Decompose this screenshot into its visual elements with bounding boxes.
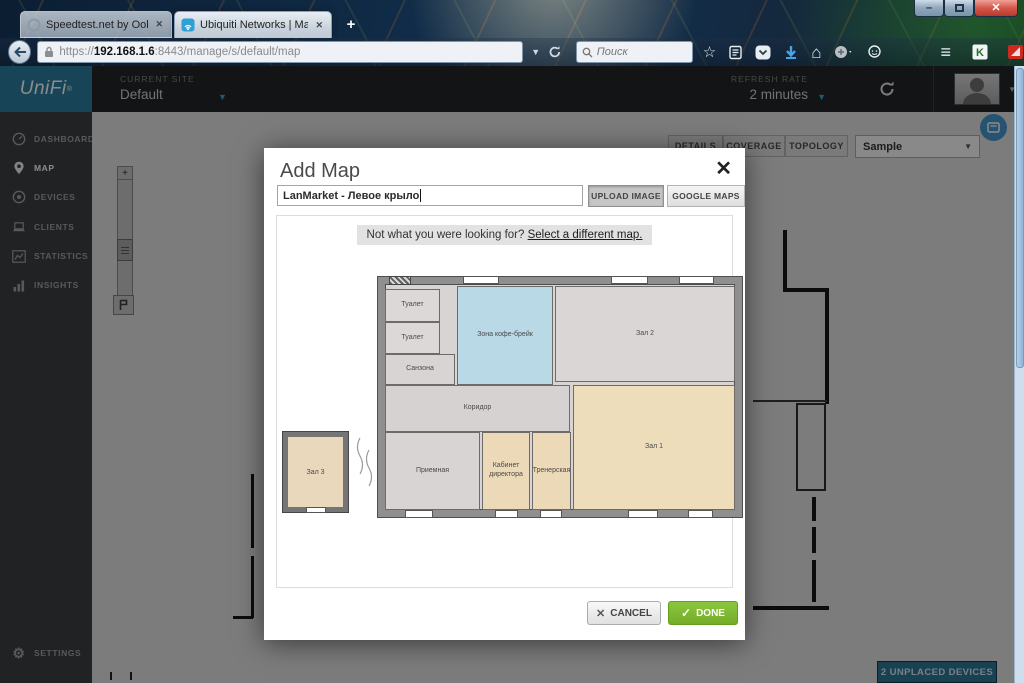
modal-title: Add Map (280, 160, 360, 183)
floorplan-window (540, 510, 562, 518)
floorplan-window (405, 510, 433, 518)
floorplan-main-building: Туалет Туалет Санзона Зона кофе-брейк За… (378, 277, 742, 517)
tab-strip: Speedtest.net by Ookla - Г... ✕ Ubiquiti… (0, 11, 1024, 38)
home-icon[interactable]: ⌂ (811, 44, 821, 61)
ubiquiti-favicon-icon (181, 18, 195, 32)
google-maps-button[interactable]: GOOGLE MAPS (667, 185, 745, 207)
tab-close-icon[interactable]: ✕ (313, 20, 325, 31)
tab-title: Ubiquiti Networks | Map (200, 19, 308, 31)
done-button[interactable]: ✓ DONE (668, 601, 738, 625)
urlbar-dropdown-icon[interactable]: ▼ (531, 47, 540, 57)
download-icon[interactable] (784, 45, 798, 60)
back-arrow-icon (13, 46, 27, 58)
map-name-value: LanMarket - Левое крыло (283, 190, 419, 202)
speedtest-favicon-icon (27, 18, 41, 32)
tab-title: Speedtest.net by Ookla - Г... (46, 19, 148, 31)
floorplan-room: Тренерская (532, 432, 571, 510)
map-notice: Not what you were looking for? Select a … (357, 225, 653, 245)
select-different-map-link[interactable]: Select a different map. (528, 229, 643, 241)
new-tab-button[interactable]: + (338, 15, 364, 35)
floorplan-room: Зона кофе-брейк (457, 286, 553, 385)
pocket-icon[interactable] (755, 45, 771, 60)
floorplan-break-symbol (350, 436, 378, 506)
tab-close-icon[interactable]: ✕ (153, 19, 165, 30)
floorplan-room: Кабинет директора (482, 432, 530, 510)
kaspersky-protection-icon[interactable] (1007, 44, 1024, 60)
floorplan-window (628, 510, 658, 518)
floorplan-window (679, 276, 714, 284)
floorplan-window (495, 510, 518, 518)
cancel-label: CANCEL (610, 608, 652, 619)
reload-icon[interactable] (548, 45, 562, 59)
url-bar[interactable]: https://192.168.1.6:8443/manage/s/defaul… (37, 41, 523, 63)
floorplan-room: Коридор (385, 385, 570, 432)
text-caret (420, 189, 421, 202)
navigation-toolbar: https://192.168.1.6:8443/manage/s/defaul… (0, 38, 1024, 66)
add-map-modal: Add Map ✕ LanMarket - Левое крыло UPLOAD… (264, 148, 745, 640)
svg-text:K: K (976, 47, 984, 59)
tab-speedtest[interactable]: Speedtest.net by Ookla - Г... ✕ (20, 11, 172, 38)
scrollbar-thumb[interactable] (1016, 68, 1024, 368)
search-input[interactable] (597, 46, 687, 58)
url-text: https://192.168.1.6:8443/manage/s/defaul… (59, 46, 300, 58)
search-icon (582, 47, 593, 58)
url-path: :8443/manage/s/default/map (155, 46, 301, 58)
bookmark-star-icon[interactable]: ☆ (703, 45, 716, 60)
toolbar-icons: ☆ ⌂ ≡ K (703, 43, 1024, 61)
floorplan-room: Зал 2 (555, 286, 735, 382)
floorplan-room: Зал 1 (573, 385, 735, 510)
adblock-icon[interactable] (834, 45, 854, 59)
lock-icon (44, 46, 54, 58)
floorplan-room: Санзона (385, 354, 455, 385)
screenshot-stage: – ✕ Speedtest.net by Ookla - Г... ✕ Ubiq… (0, 0, 1024, 683)
menu-hamburger-icon[interactable]: ≡ (940, 43, 951, 61)
floorplan-room: Туалет (385, 322, 440, 354)
search-box[interactable] (576, 41, 693, 63)
floorplan-window (306, 507, 326, 513)
back-button[interactable] (8, 40, 31, 64)
reading-list-icon[interactable] (729, 45, 742, 60)
upload-image-button[interactable]: UPLOAD IMAGE (588, 185, 664, 207)
cancel-x-icon: ✕ (596, 607, 605, 620)
floorplan-hatch (389, 276, 411, 285)
cancel-button[interactable]: ✕ CANCEL (587, 601, 661, 625)
tab-unifi-map[interactable]: Ubiquiti Networks | Map ✕ (174, 11, 332, 38)
done-label: DONE (696, 608, 725, 619)
url-host: 192.168.1.6 (94, 46, 155, 58)
modal-close-icon[interactable]: ✕ (715, 156, 732, 181)
check-icon: ✓ (681, 606, 691, 620)
map-name-input[interactable]: LanMarket - Левое крыло (277, 185, 583, 206)
floorplan-window (688, 510, 713, 518)
floorplan-room: Туалет (385, 289, 440, 322)
notice-text: Not what you were looking for? (367, 229, 528, 241)
chat-icon[interactable] (867, 45, 882, 59)
kaspersky-k-icon[interactable]: K (972, 44, 988, 60)
floorplan-hall3: Зал 3 (283, 432, 348, 512)
url-scheme: https:// (59, 46, 94, 58)
browser-chrome: – ✕ Speedtest.net by Ookla - Г... ✕ Ubiq… (0, 0, 1024, 66)
browser-scrollbar[interactable] (1014, 66, 1024, 683)
floorplan-room-label: Зал 3 (306, 469, 324, 476)
floorplan-window (463, 276, 499, 284)
floorplan-window (611, 276, 648, 284)
floorplan-room: Приемная (385, 432, 480, 510)
